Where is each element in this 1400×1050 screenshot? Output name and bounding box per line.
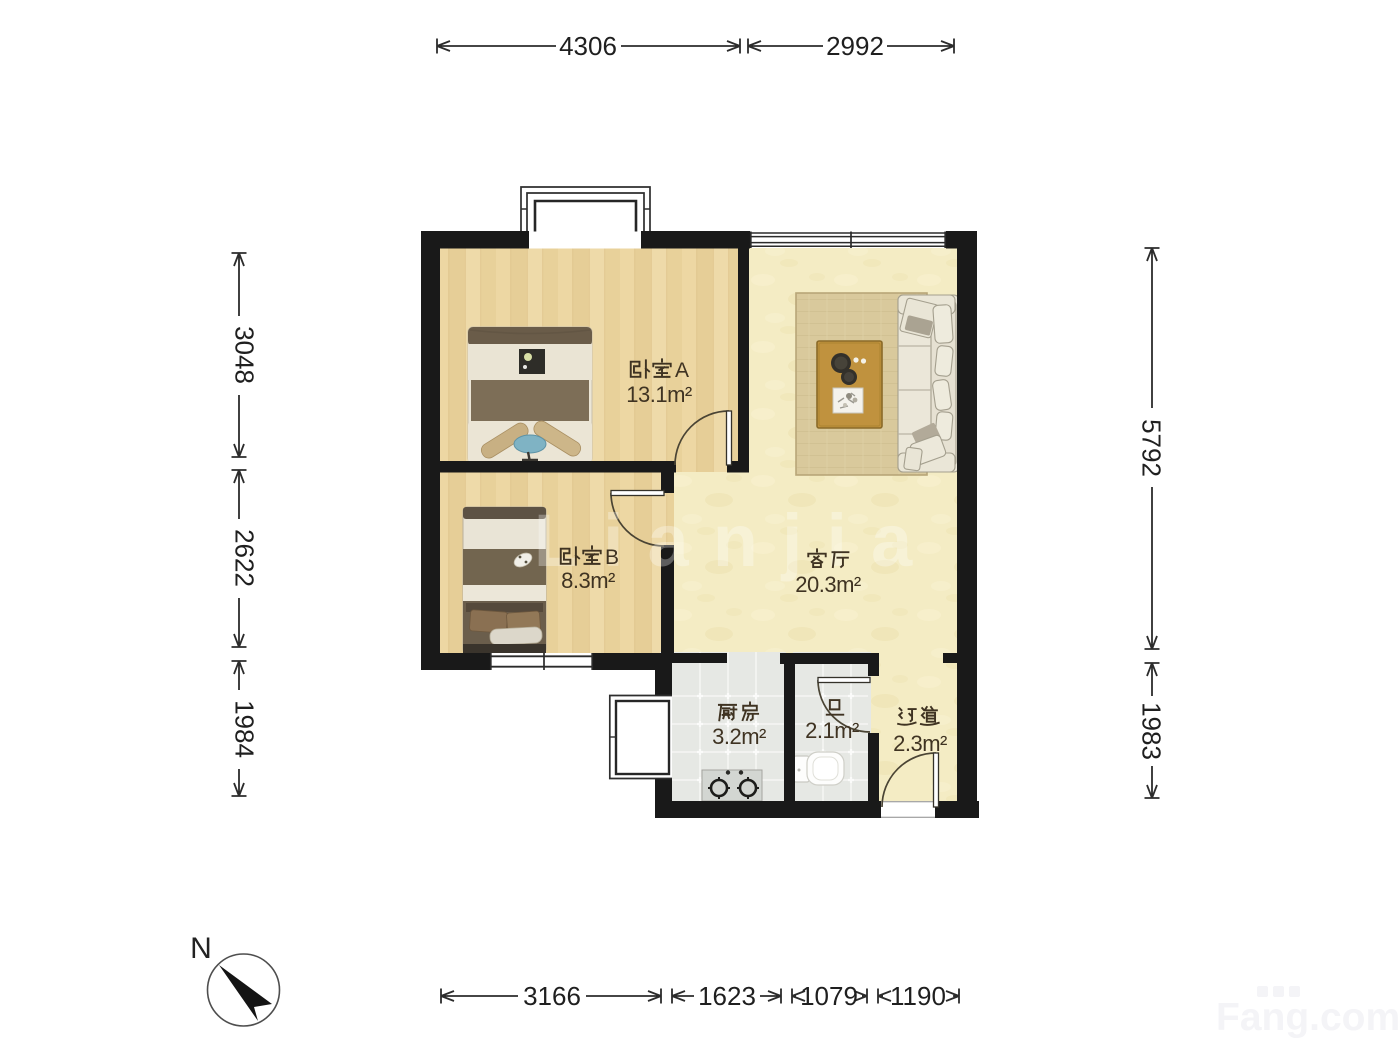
- svg-text:2.1m²: 2.1m²: [805, 718, 859, 743]
- svg-text:1623: 1623: [698, 981, 756, 1011]
- svg-text:A: A: [675, 359, 689, 382]
- svg-text:1983: 1983: [1137, 702, 1167, 760]
- svg-text:3048: 3048: [230, 326, 260, 384]
- svg-text:N: N: [190, 932, 212, 965]
- svg-text:1984: 1984: [230, 700, 260, 758]
- svg-text:B: B: [605, 546, 619, 569]
- svg-text:1190: 1190: [890, 981, 946, 1011]
- svg-text:3166: 3166: [523, 981, 581, 1011]
- svg-text:2622: 2622: [230, 529, 260, 587]
- svg-text:Fang.com: Fang.com: [1216, 996, 1400, 1039]
- svg-text:4306: 4306: [559, 31, 617, 61]
- svg-text:20.3m²: 20.3m²: [795, 572, 861, 597]
- svg-text:2.3m²: 2.3m²: [893, 731, 947, 756]
- svg-text:1079: 1079: [800, 981, 858, 1011]
- svg-text:5792: 5792: [1137, 419, 1167, 477]
- svg-text:3.2m²: 3.2m²: [712, 724, 766, 749]
- svg-text:13.1m²: 13.1m²: [626, 382, 692, 407]
- svg-text:8.3m²: 8.3m²: [561, 568, 615, 593]
- svg-text:2992: 2992: [826, 31, 884, 61]
